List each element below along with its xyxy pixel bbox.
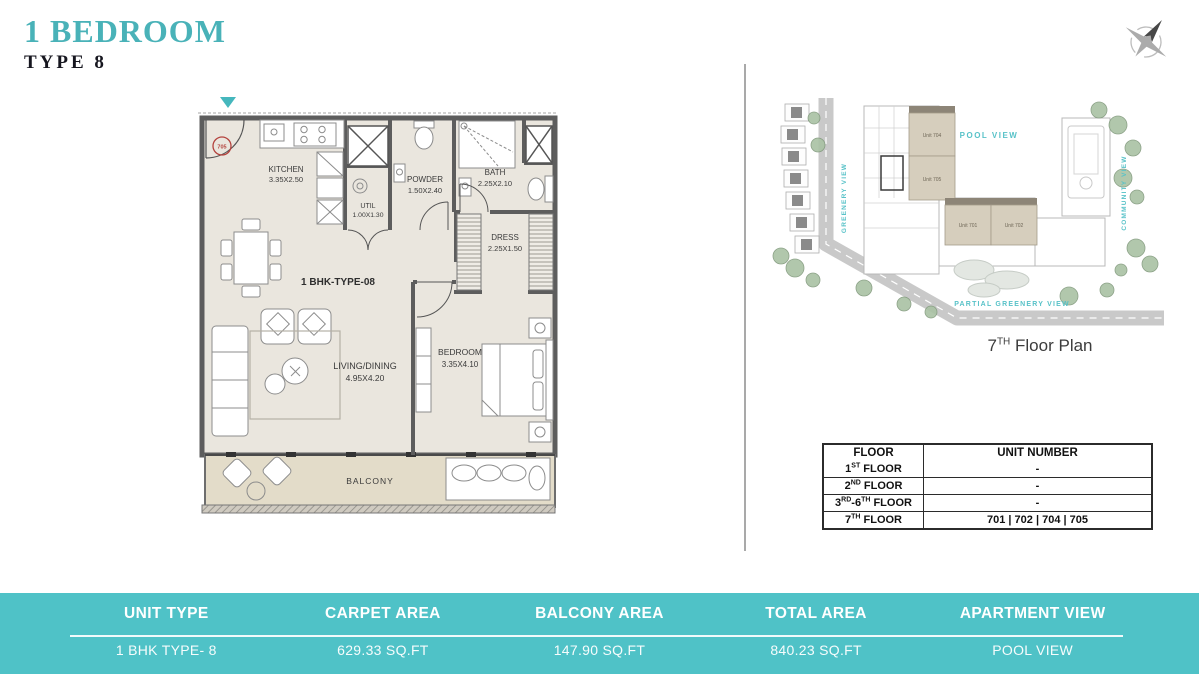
page-title: 1 BEDROOM TYPE 8	[24, 14, 226, 74]
table-header-row: FLOOR UNIT NUMBER	[824, 445, 1151, 461]
brochure-page: 1 BEDROOM TYPE 8	[0, 0, 1199, 674]
bath-label: BATH	[485, 168, 506, 177]
unit-number-cell: 701 | 702 | 704 | 705	[924, 512, 1151, 528]
partial-greenery-view-label: PARTIAL GREENERY VIEW	[954, 301, 1070, 308]
util-label: UTIL	[360, 203, 375, 210]
pool-view-label: POOL VIEW	[960, 131, 1019, 140]
kitchen-dims: 3.35X2.50	[269, 175, 303, 184]
living-label: LIVING/DINING	[333, 361, 397, 371]
unit-number-cell: -	[924, 478, 1151, 494]
kitchen-label: KITCHEN	[268, 165, 303, 174]
summary-column-label: TOTAL AREA	[708, 605, 925, 623]
floor-cell: 1ST FLOOR	[824, 461, 924, 477]
powder-dims: 1.50X2.40	[408, 186, 442, 195]
bath-dims: 2.25X2.10	[478, 179, 512, 188]
site-plan-caption: 7TH Floor Plan	[928, 336, 1152, 356]
powder-label: POWDER	[407, 175, 443, 184]
compass-icon	[1113, 12, 1179, 74]
greenery-view-label: GREENERY VIEW	[841, 163, 848, 233]
balcony-label: BALCONY	[346, 476, 394, 486]
title-type: TYPE 8	[24, 52, 226, 74]
summary-column-label: CARPET AREA	[275, 605, 492, 623]
dress-dims: 2.25X1.50	[488, 244, 522, 253]
title-bedroom: 1 BEDROOM	[24, 14, 226, 49]
balcony-parapet	[202, 505, 555, 513]
unit-701-label: Unit 701	[959, 223, 978, 229]
table-row: 7TH FLOOR701 | 702 | 704 | 705	[824, 511, 1151, 528]
community-view-label: COMMUNITY VIEW	[1121, 155, 1128, 230]
summary-column-value: POOL VIEW	[924, 642, 1141, 658]
unit-702-label: Unit 702	[1005, 223, 1024, 229]
summary-column-label: APARTMENT VIEW	[924, 605, 1141, 623]
table-row: 1ST FLOOR-	[824, 461, 1151, 477]
unit-704-label: Unit 704	[923, 133, 942, 139]
floor-column-header: FLOOR	[824, 445, 924, 461]
unit-705-label: Unit 705	[923, 177, 942, 183]
floor-cell: 2ND FLOOR	[824, 478, 924, 494]
summary-column-label: UNIT TYPE	[58, 605, 275, 623]
summary-labels-row: UNIT TYPECARPET AREABALCONY AREATOTAL AR…	[58, 605, 1141, 623]
summary-values-row: 1 BHK TYPE- 8629.33 SQ.FT147.90 SQ.FT840…	[58, 642, 1141, 658]
bedroom-dims: 3.35X4.10	[442, 360, 479, 369]
summary-column-value: 840.23 SQ.FT	[708, 642, 925, 658]
summary-underline	[70, 635, 1123, 637]
floor-cell: 3RD-6TH FLOOR	[824, 495, 924, 511]
site-plan-drawing: Unit 704 Unit 705 Unit 701 Unit 702 GREE…	[768, 98, 1165, 333]
unit-type-label: 1 BHK-TYPE-08	[301, 277, 375, 288]
dress-label: DRESS	[491, 233, 519, 242]
floor-table-body: 1ST FLOOR-2ND FLOOR-3RD-6TH FLOOR-7TH FL…	[824, 461, 1151, 528]
table-row: 2ND FLOOR-	[824, 477, 1151, 494]
floor-plan-drawing: 705	[198, 112, 558, 514]
summary-column-label: BALCONY AREA	[491, 605, 708, 623]
floor-unit-table: FLOOR UNIT NUMBER 1ST FLOOR-2ND FLOOR-3R…	[822, 443, 1153, 530]
summary-column-value: 629.33 SQ.FT	[275, 642, 492, 658]
floor-cell: 7TH FLOOR	[824, 512, 924, 528]
unit-number-cell: -	[924, 461, 1151, 477]
bedroom-label: BEDROOM	[438, 347, 482, 357]
entry-unit-number: 705	[217, 145, 226, 151]
living-dims: 4.95X4.20	[346, 373, 385, 383]
util-dims: 1.00X1.30	[353, 212, 384, 219]
section-divider	[744, 64, 746, 551]
unit-number-cell: -	[924, 495, 1151, 511]
summary-column-value: 1 BHK TYPE- 8	[58, 642, 275, 658]
unit-number-column-header: UNIT NUMBER	[924, 445, 1151, 461]
villa-row	[781, 104, 819, 253]
summary-column-value: 147.90 SQ.FT	[491, 642, 708, 658]
summary-bar: UNIT TYPECARPET AREABALCONY AREATOTAL AR…	[0, 593, 1199, 674]
entry-marker-icon	[220, 97, 236, 108]
table-row: 3RD-6TH FLOOR-	[824, 494, 1151, 511]
